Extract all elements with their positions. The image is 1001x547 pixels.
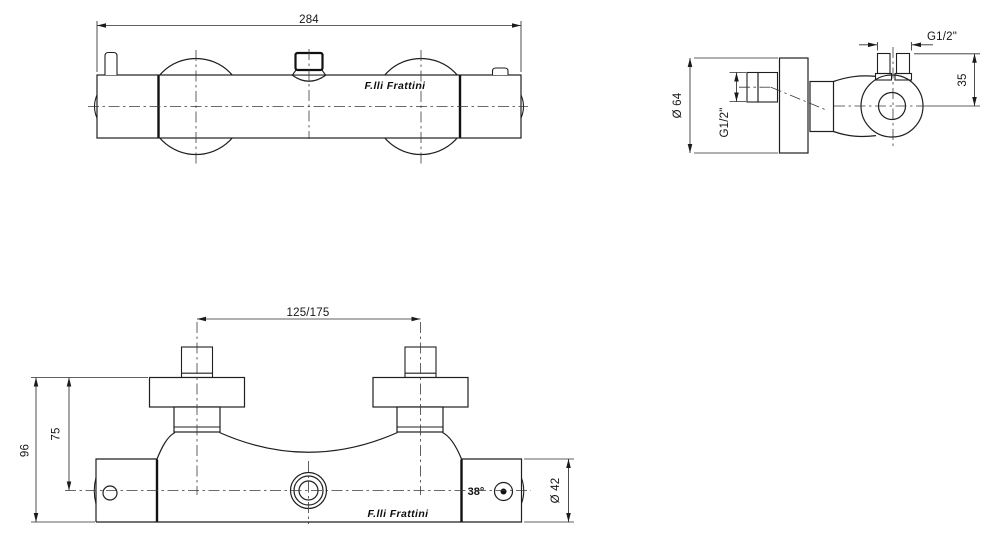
dimension-inlet-thread: G1/2"	[719, 73, 746, 138]
shower-mixer-technical-drawing: F.lli Frattini 284	[0, 0, 1001, 547]
side-view: Ø 64 G1/2" G1/2" 35	[672, 31, 980, 153]
dim-centerline-height-label: 75	[51, 427, 63, 440]
brand-text-bottom: F.lli Frattini	[367, 508, 429, 520]
dimension-total-height: 96	[20, 378, 149, 523]
dim-inlet-thread-label: G1/2"	[719, 107, 731, 137]
body-horn-bottom	[834, 132, 877, 137]
connection-nut	[810, 82, 834, 132]
wall-flange	[780, 58, 809, 153]
dimension-outlet-height: 35	[914, 54, 980, 106]
bottom-view: 38° F.lli Frattini 125/175 96 75	[20, 307, 575, 524]
temperature-stop-label: 38°	[468, 486, 485, 498]
dim-total-height-label: 96	[20, 444, 32, 457]
right-union-nut	[397, 407, 443, 432]
technical-drawing-page: F.lli Frattini 284	[0, 0, 1001, 547]
dimension-body-diameter: Ø 42	[524, 459, 574, 522]
brand-text-front: F.lli Frattini	[364, 80, 426, 92]
outlet-thread-right	[897, 54, 910, 74]
front-view: F.lli Frattini 284	[88, 14, 528, 164]
dim-overall-width-label: 284	[299, 14, 319, 26]
handle-screw-hole	[103, 486, 117, 500]
body-horn-top	[834, 76, 877, 82]
dimension-centerline-height: 75	[51, 378, 70, 491]
dim-body-diameter-label: Ø 42	[550, 478, 562, 504]
safety-button-icon	[495, 483, 513, 501]
dim-outlet-height-label: 35	[957, 73, 969, 86]
dim-outlet-thread-label: G1/2"	[927, 31, 957, 43]
dimension-union-centers: 125/175	[197, 307, 421, 319]
outlet-thread-left	[878, 54, 891, 74]
dim-union-centers-label: 125/175	[287, 307, 330, 319]
right-lever-tab	[493, 68, 509, 75]
dim-flange-diameter-label: Ø 64	[672, 92, 684, 118]
left-lever-tab	[105, 53, 117, 76]
dimension-outlet-thread: G1/2"	[859, 31, 957, 51]
